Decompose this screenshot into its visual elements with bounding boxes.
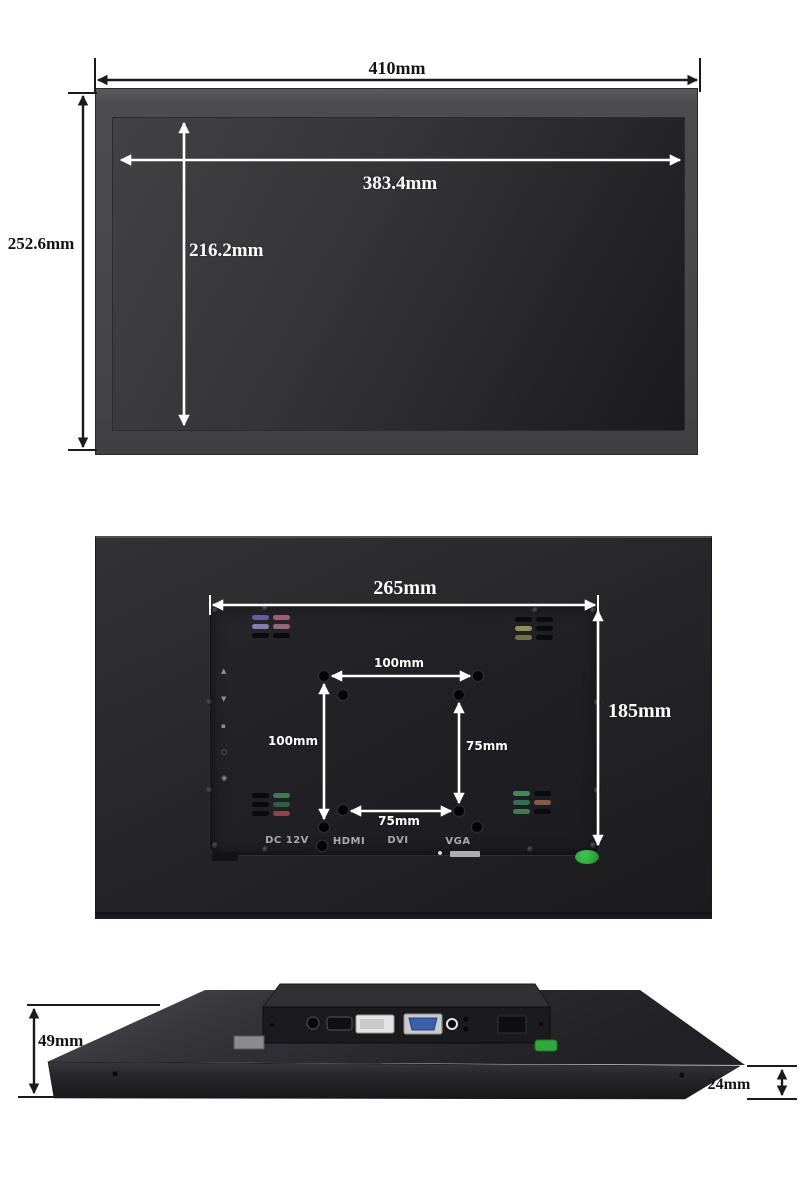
- vesa-75-height-label: 75mm: [466, 740, 508, 752]
- osd-button-auto-icon: ○: [221, 749, 227, 756]
- port-label-vga: VGA: [445, 837, 470, 847]
- vesa-hole-100-bottom-left: [319, 822, 329, 832]
- screw: [212, 842, 219, 849]
- audio-jack: [447, 1019, 457, 1029]
- vent-slot: [534, 800, 551, 805]
- vent-slot: [513, 809, 530, 814]
- side-top-surface: [47, 990, 745, 1065]
- back-panel-bottom-edge: [95, 912, 712, 919]
- osd-button-down-icon: ▼: [221, 696, 226, 703]
- vesa-hole-75-bottom-right: [454, 806, 464, 816]
- display-width-label: 383.4mm: [363, 174, 437, 193]
- osd-button-menu-icon: ▪: [221, 723, 226, 730]
- screw: [212, 607, 219, 614]
- overall-width-label: 410mm: [369, 59, 426, 77]
- overall-height-label: 252.6mm: [2, 235, 80, 252]
- vesa-hole-75-top-right: [454, 690, 464, 700]
- product-dimension-diagram: 410mm 252.6mm 383.4mm 216.2mm: [0, 0, 800, 1200]
- plate-tab: [212, 852, 238, 861]
- screw: [539, 1022, 543, 1026]
- osd-button-up-icon: ▲: [221, 668, 226, 675]
- vent-slot: [252, 811, 269, 816]
- display-height-label: 216.2mm: [189, 241, 263, 260]
- vesa-100-height-label: 100mm: [258, 735, 318, 747]
- screw: [206, 787, 213, 794]
- screw: [594, 787, 601, 794]
- screw: [206, 699, 213, 706]
- vent-slot: [252, 615, 269, 620]
- vesa-75-width-label: 75mm: [378, 815, 420, 827]
- mount-plate-width-label: 265mm: [373, 578, 436, 598]
- vent-slot: [273, 615, 290, 620]
- port-label-hdmi: HDMI: [333, 837, 365, 847]
- edge-screw-hole: [680, 1073, 685, 1078]
- connector-box-top: [263, 984, 550, 1007]
- vent-slot: [515, 635, 532, 640]
- vent-grille-top-left: [252, 615, 292, 643]
- side-front-edge-band: [48, 1062, 740, 1099]
- vesa-hole-100-bottom-right: [472, 822, 482, 832]
- vga-connector-edge: [450, 851, 480, 857]
- vent-slot: [252, 624, 269, 629]
- power-switch-green: [535, 1040, 557, 1051]
- vent-grille-bottom-right: [513, 791, 553, 819]
- vent-slot: [536, 617, 553, 622]
- vent-slot: [273, 793, 290, 798]
- vent-grille-bottom-left: [252, 793, 292, 821]
- edge-thickness-label: 24mm: [700, 1077, 758, 1093]
- port-recess: [498, 1016, 526, 1033]
- dvi-pin-area: [360, 1019, 384, 1029]
- vesa-hole-75-bottom-left: [338, 805, 348, 815]
- vent-slot: [252, 802, 269, 807]
- vent-slot: [534, 809, 551, 814]
- hdmi-port: [327, 1017, 352, 1030]
- connector-dot: [438, 851, 442, 855]
- vent-slot: [513, 800, 530, 805]
- side-view-section: 49mm 24mm: [0, 980, 800, 1120]
- osd-button-power-icon: ◉: [221, 775, 227, 782]
- front-view-section: 410mm 252.6mm 383.4mm 216.2mm: [0, 50, 800, 470]
- screw: [262, 605, 269, 612]
- connector-box-front: [263, 1007, 550, 1043]
- monitor-screen: [112, 117, 685, 431]
- vent-slot: [252, 633, 269, 638]
- side-view-drawing: [0, 980, 800, 1120]
- vent-slot: [515, 617, 532, 622]
- screw: [527, 846, 534, 853]
- power-led: [575, 850, 599, 864]
- mount-plate-height-label: 185mm: [608, 701, 671, 721]
- screw: [270, 1023, 274, 1027]
- vent-slot: [252, 793, 269, 798]
- vesa-hole-extra: [317, 841, 327, 851]
- small-jack: [464, 1027, 469, 1032]
- edge-screw-hole: [113, 1072, 118, 1077]
- total-depth-label: 49mm: [38, 1032, 83, 1049]
- vent-slot: [536, 626, 553, 631]
- vga-port-blue: [409, 1018, 437, 1030]
- vesa-hole-100-top-left: [319, 671, 329, 681]
- vent-slot: [273, 802, 290, 807]
- vesa-100-width-label: 100mm: [374, 657, 424, 669]
- screw: [532, 607, 539, 614]
- dc-power-jack: [307, 1017, 319, 1029]
- small-jack: [464, 1017, 469, 1022]
- vent-slot: [534, 791, 551, 796]
- screw: [590, 842, 597, 849]
- vent-grille-top-right: [515, 617, 555, 645]
- port-label-dc12v: DC 12V: [265, 836, 309, 846]
- vent-slot: [273, 811, 290, 816]
- vesa-hole-75-top-left: [338, 690, 348, 700]
- vesa-hole-100-top-right: [473, 671, 483, 681]
- vent-slot: [273, 633, 290, 638]
- back-view-section: ▲ ▼ ▪ ○ ◉: [0, 520, 800, 935]
- vent-slot: [515, 626, 532, 631]
- vent-slot: [273, 624, 290, 629]
- screw: [262, 846, 269, 853]
- vent-slot: [513, 791, 530, 796]
- screw: [594, 699, 601, 706]
- dvi-port: [356, 1015, 394, 1033]
- mount-bracket: [234, 1036, 264, 1049]
- screw: [590, 607, 597, 614]
- vent-slot: [536, 635, 553, 640]
- port-label-dvi: DVI: [387, 836, 408, 846]
- vga-port: [404, 1014, 442, 1034]
